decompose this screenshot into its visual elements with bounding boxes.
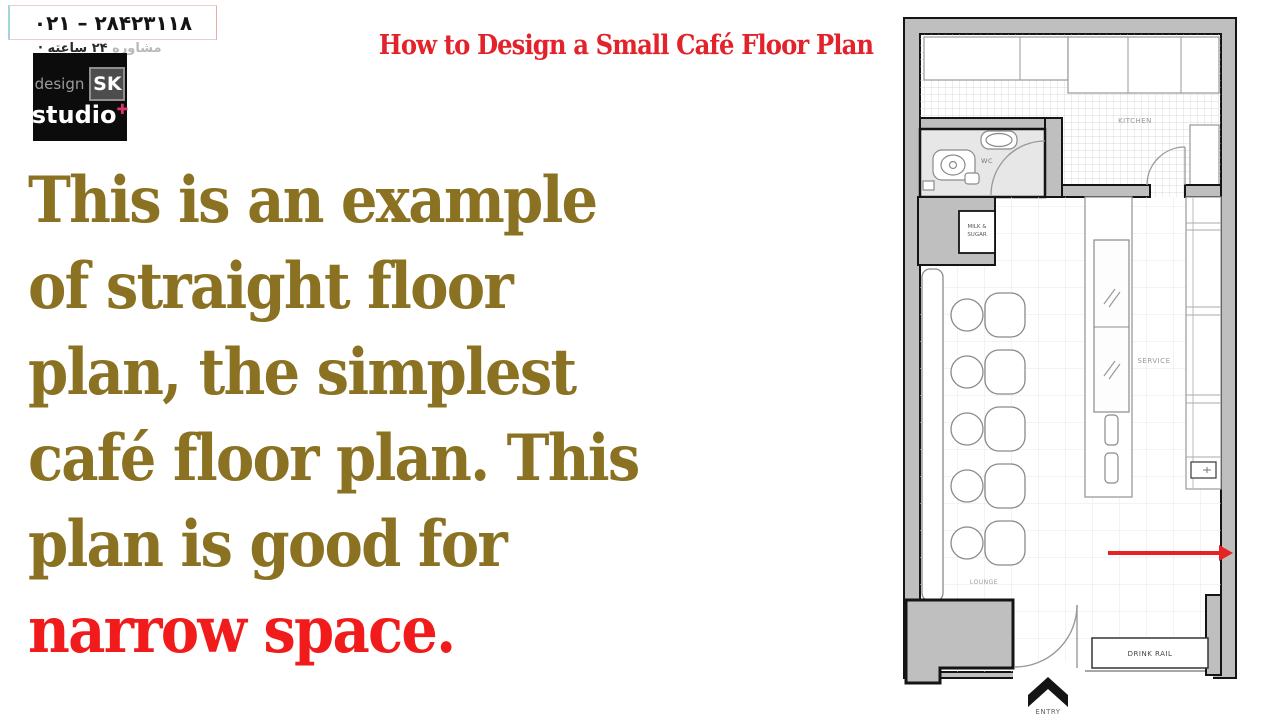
kitchen-side-counter <box>1190 125 1219 187</box>
chair <box>985 521 1025 565</box>
wc-room: WC <box>920 129 1045 197</box>
cafe-floor-plan: KITCHEN <box>903 17 1237 715</box>
chair <box>985 464 1025 508</box>
body-line-6-highlight: narrow space. <box>28 588 638 674</box>
entry-label: ENTRY <box>1035 708 1060 715</box>
table <box>951 413 983 445</box>
milk-sugar-station: MILK & SUGAR <box>918 197 995 265</box>
drink-rail: DRINK RAIL <box>1092 638 1208 668</box>
body-text: This is an example of straight floor pla… <box>28 158 706 674</box>
table <box>951 299 983 331</box>
bench <box>922 269 943 601</box>
body-line-3: plan, the simplest <box>28 330 638 416</box>
body-line-5: plan is good for <box>28 502 638 588</box>
table <box>951 356 983 388</box>
slide-title: How to Design a Small Café Floor Plan <box>379 30 873 61</box>
display-case <box>1094 240 1129 412</box>
phone-number-box: ۰۲۱ – ۲۸۴۲۳۱۱۸ <box>8 5 217 40</box>
service-counter <box>1085 197 1132 497</box>
entry-chevron-icon <box>1028 677 1068 707</box>
table <box>951 470 983 502</box>
chair <box>985 407 1025 451</box>
chair <box>985 293 1025 337</box>
logo-studio-text: studio <box>32 101 117 129</box>
wc-label: WC <box>981 157 993 165</box>
table <box>951 527 983 559</box>
lounge-seating <box>922 269 1025 601</box>
entry-marker: ENTRY <box>1028 677 1068 715</box>
right-wall-counter <box>1186 197 1221 489</box>
design-sk-studio-logo: design SK studio✚ <box>33 53 127 141</box>
body-line-1: This is an example <box>28 158 638 244</box>
kitchen-label: KITCHEN <box>1118 117 1152 125</box>
chair <box>985 350 1025 394</box>
lounge-label: LOUNGE <box>970 579 998 586</box>
video-slide: { "slide": { "phone_number": "۰۲۱ – ۲۸۴۲… <box>0 0 1280 720</box>
service-label: SERVICE <box>1137 357 1170 365</box>
phone-number: ۰۲۱ – ۲۸۴۲۳۱۱۸ <box>34 11 192 35</box>
milk-sugar-label-1: MILK & <box>967 224 987 230</box>
milk-sugar-label-2: SUGAR <box>967 232 987 238</box>
slide-title-wrap: How to Design a Small Café Floor Plan <box>351 30 900 61</box>
body-line-2: of straight floor <box>28 244 638 330</box>
logo-sk-badge: SK <box>89 67 125 101</box>
drink-rail-label: DRINK RAIL <box>1128 650 1173 658</box>
logo-plus-icon: ✚ <box>117 102 129 118</box>
logo-design-text: design <box>35 75 85 93</box>
body-line-4: café floor plan. This <box>28 416 638 502</box>
